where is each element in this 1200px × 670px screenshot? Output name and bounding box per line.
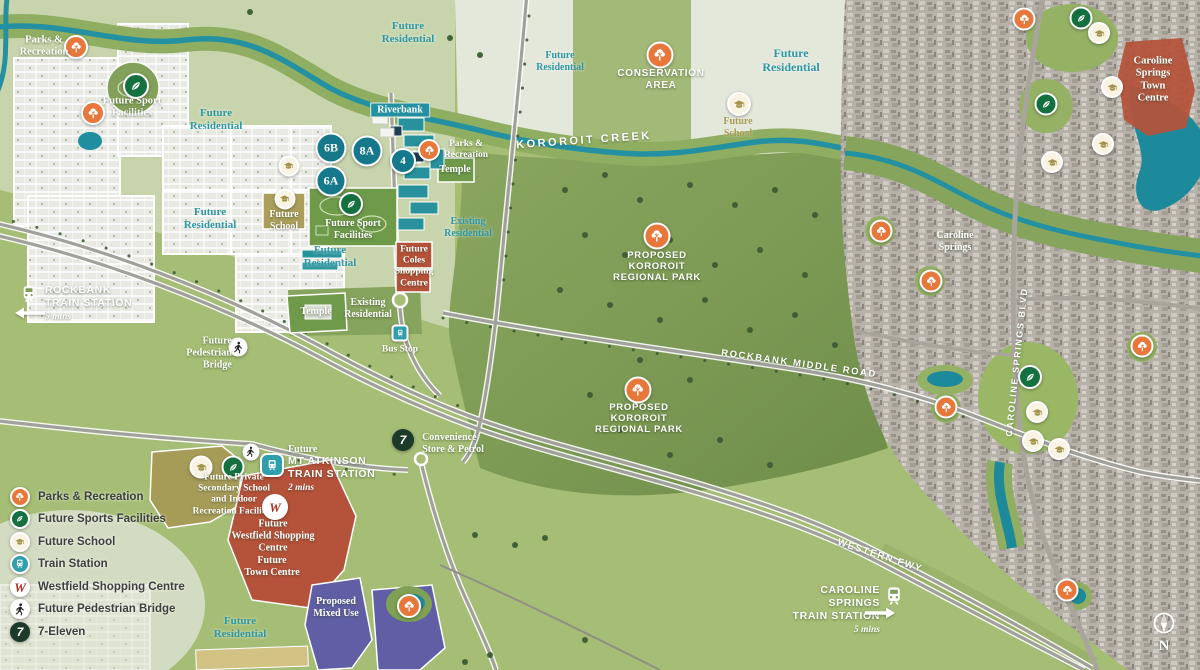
caroline-springs-station-time: 5 mins xyxy=(770,625,880,635)
train-station-icon xyxy=(260,453,284,477)
leaf-icon xyxy=(10,509,30,529)
legend-item-future-sports-facilities: Future Sports Facilities xyxy=(10,508,166,530)
estate-badge-6a: 6A xyxy=(316,166,347,197)
legend-item-seven-eleven: 7 7-Eleven xyxy=(10,621,85,643)
rockbank-station-time: 5 mins xyxy=(45,312,132,322)
legend-label: 7-Eleven xyxy=(38,626,85,638)
pedestrian-icon xyxy=(10,599,30,619)
train-icon xyxy=(10,554,30,574)
future-school-icon xyxy=(1022,430,1044,452)
parks-recreation-icon xyxy=(81,101,105,125)
arrow-right-icon xyxy=(865,608,895,619)
masterplan-map: Future Residential Future Residential Fu… xyxy=(0,0,1200,670)
westfield-icon: W xyxy=(10,577,30,597)
bus-stop-icon xyxy=(392,325,409,342)
rockbank-station-name: ROCKBANK TRAIN STATION xyxy=(45,284,132,310)
school-icon xyxy=(10,532,30,552)
future-school-icon xyxy=(275,189,296,210)
parks-recreation-icon xyxy=(920,270,943,293)
future-school-icon xyxy=(1101,76,1123,98)
parks-recreation-icon xyxy=(397,594,421,618)
legend-item-future-pedestrian-bridge: Future Pedestrian Bridge xyxy=(10,598,175,620)
parks-recreation-icon xyxy=(870,220,893,243)
mt-atkinson-station-time: 2 mins xyxy=(288,483,375,493)
future-school-icon xyxy=(1048,438,1070,460)
legend-label: Train Station xyxy=(38,558,108,570)
westfield-icon: W xyxy=(262,494,288,520)
future-school-icon xyxy=(727,92,751,116)
future-school-icon xyxy=(1092,133,1114,155)
mt-atkinson-station-name: MT ATKINSON TRAIN STATION xyxy=(288,455,375,481)
seven-eleven-icon: 7 xyxy=(392,429,414,451)
legend-label: Westfield Shopping Centre xyxy=(38,581,185,593)
regional-park-icon xyxy=(625,377,652,404)
westfield-w-letter: W xyxy=(14,581,26,594)
future-school-icon xyxy=(279,156,300,177)
regional-park-icon xyxy=(644,223,671,250)
legend-label: Parks & Recreation xyxy=(38,491,143,503)
legend-item-westfield-shopping-centre: W Westfield Shopping Centre xyxy=(10,576,185,598)
parks-recreation-icon xyxy=(935,396,958,419)
sports-facilities-icon xyxy=(222,456,245,479)
legend-item-future-school: Future School xyxy=(10,531,115,553)
legend-label: Future Sports Facilities xyxy=(38,513,166,525)
train-station-icon xyxy=(18,282,40,306)
legend-item-parks-recreation: Parks & Recreation xyxy=(10,486,143,508)
caroline-springs-station-name: CAROLINE SPRINGS TRAIN STATION xyxy=(770,584,880,623)
tree-icon xyxy=(10,487,30,507)
estate-badge-6b: 6B xyxy=(316,133,347,164)
mt-atkinson-station-prefix: Future xyxy=(288,444,375,455)
future-school-icon xyxy=(190,456,213,479)
future-school-icon xyxy=(1026,401,1048,423)
train-station-icon xyxy=(882,583,906,609)
seven-eleven-glyph: 7 xyxy=(400,434,407,446)
riverbank-tag: Riverbank xyxy=(370,103,430,118)
parks-recreation-icon xyxy=(1131,335,1154,358)
caroline-springs-station-label: CAROLINE SPRINGS TRAIN STATION 5 mins xyxy=(770,584,880,635)
parks-recreation-icon xyxy=(418,139,440,161)
conservation-area-icon xyxy=(647,42,674,69)
estate-badge-8a: 8A xyxy=(352,136,383,167)
pedestrian-bridge-icon xyxy=(243,444,260,461)
pedestrian-bridge-icon xyxy=(229,338,248,357)
sports-facilities-icon xyxy=(1018,365,1042,389)
estate-badge-4: 4 xyxy=(390,148,416,174)
seven-glyph: 7 xyxy=(17,626,24,638)
rockbank-station-label: ROCKBANK TRAIN STATION 5 mins xyxy=(45,284,132,322)
legend-label: Future School xyxy=(38,536,115,548)
arrow-left-icon xyxy=(15,308,45,319)
map-base-art xyxy=(0,0,1200,670)
sports-facilities-icon xyxy=(339,192,363,216)
future-school-icon xyxy=(1041,151,1063,173)
westfield-w-letter: W xyxy=(269,501,281,514)
seven-eleven-icon: 7 xyxy=(10,622,30,642)
parks-recreation-icon xyxy=(1056,579,1079,602)
legend-item-train-station: Train Station xyxy=(10,553,108,575)
mt-atkinson-station-label: Future MT ATKINSON TRAIN STATION 2 mins xyxy=(288,444,375,493)
parks-recreation-icon xyxy=(64,35,88,59)
compass-icon xyxy=(1152,611,1176,635)
parks-recreation-icon xyxy=(1013,8,1036,31)
sports-facilities-icon xyxy=(123,73,149,99)
legend-label: Future Pedestrian Bridge xyxy=(38,603,175,615)
sports-facilities-icon xyxy=(1035,93,1058,116)
future-school-icon xyxy=(1088,22,1110,44)
